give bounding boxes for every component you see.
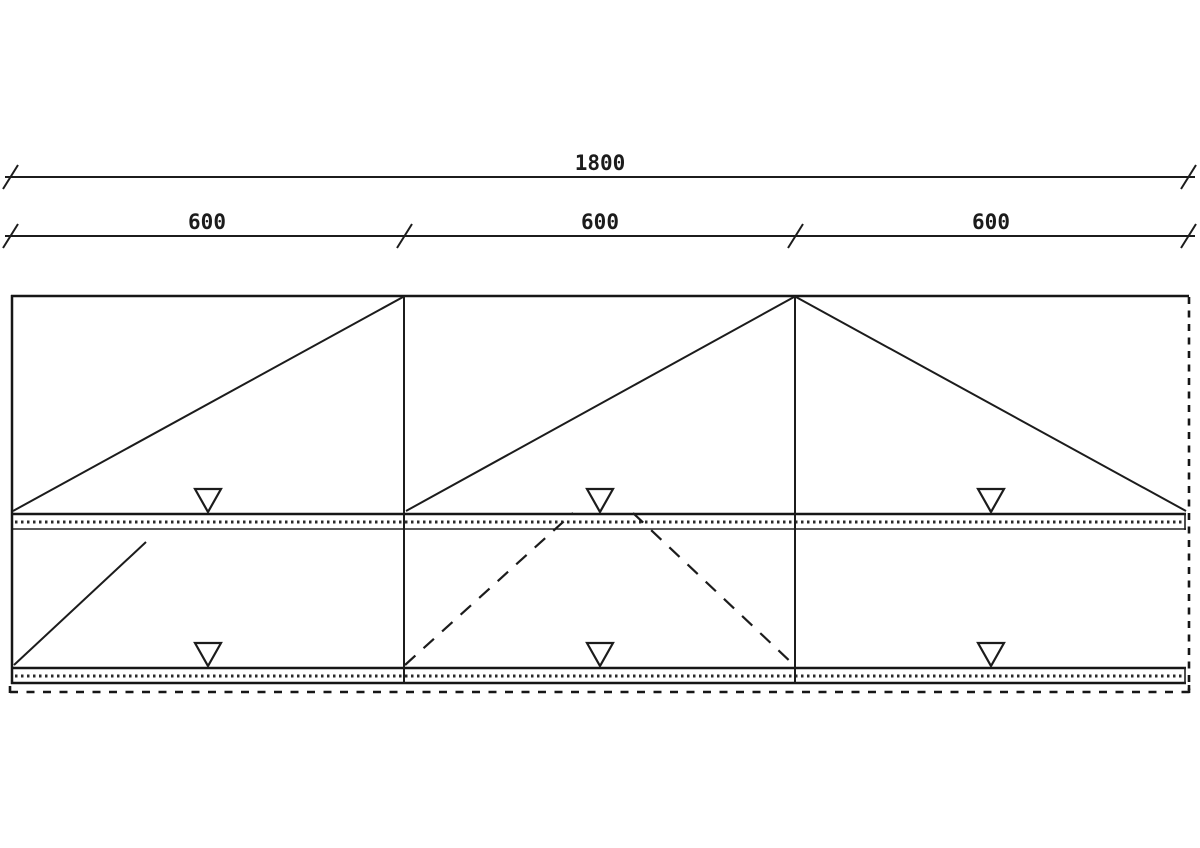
sash-diagonal-lower-dashed-right — [633, 513, 794, 665]
sill-band — [11, 667, 1186, 684]
transom-vent-markers — [195, 489, 1004, 512]
drawing-canvas: 1800 600 600 600 — [0, 0, 1200, 848]
triangle-down-open-icon — [587, 643, 613, 666]
segment-dimension-label-2: 600 — [581, 210, 619, 234]
segment-dimension-label-3: 600 — [972, 210, 1010, 234]
sash-diagonal-upper-2 — [406, 297, 794, 511]
sash-diagonal-lower-partial — [14, 542, 146, 665]
sash-diagonal-lower-dashed-left — [405, 513, 573, 665]
elevation-drawing: 1800 600 600 600 — [0, 0, 1200, 848]
sash-diagonal-upper-3 — [796, 297, 1186, 511]
triangle-down-open-icon — [978, 489, 1004, 512]
section-outline — [10, 685, 1190, 693]
dimension-row-overall: 1800 — [3, 151, 1196, 189]
overall-dimension-label: 1800 — [575, 151, 626, 175]
triangle-down-open-icon — [978, 643, 1004, 666]
triangle-down-open-icon — [195, 489, 221, 512]
triangle-down-open-icon — [195, 643, 221, 666]
sill-vent-markers — [195, 643, 1004, 666]
triangle-down-open-icon — [587, 489, 613, 512]
sash-diagonal-upper-1 — [13, 297, 403, 511]
upper-row-opening-symbols — [13, 297, 1186, 511]
segment-dimension-label-1: 600 — [188, 210, 226, 234]
dimension-row-segments: 600 600 600 — [3, 210, 1196, 248]
transom-band — [11, 513, 1186, 530]
